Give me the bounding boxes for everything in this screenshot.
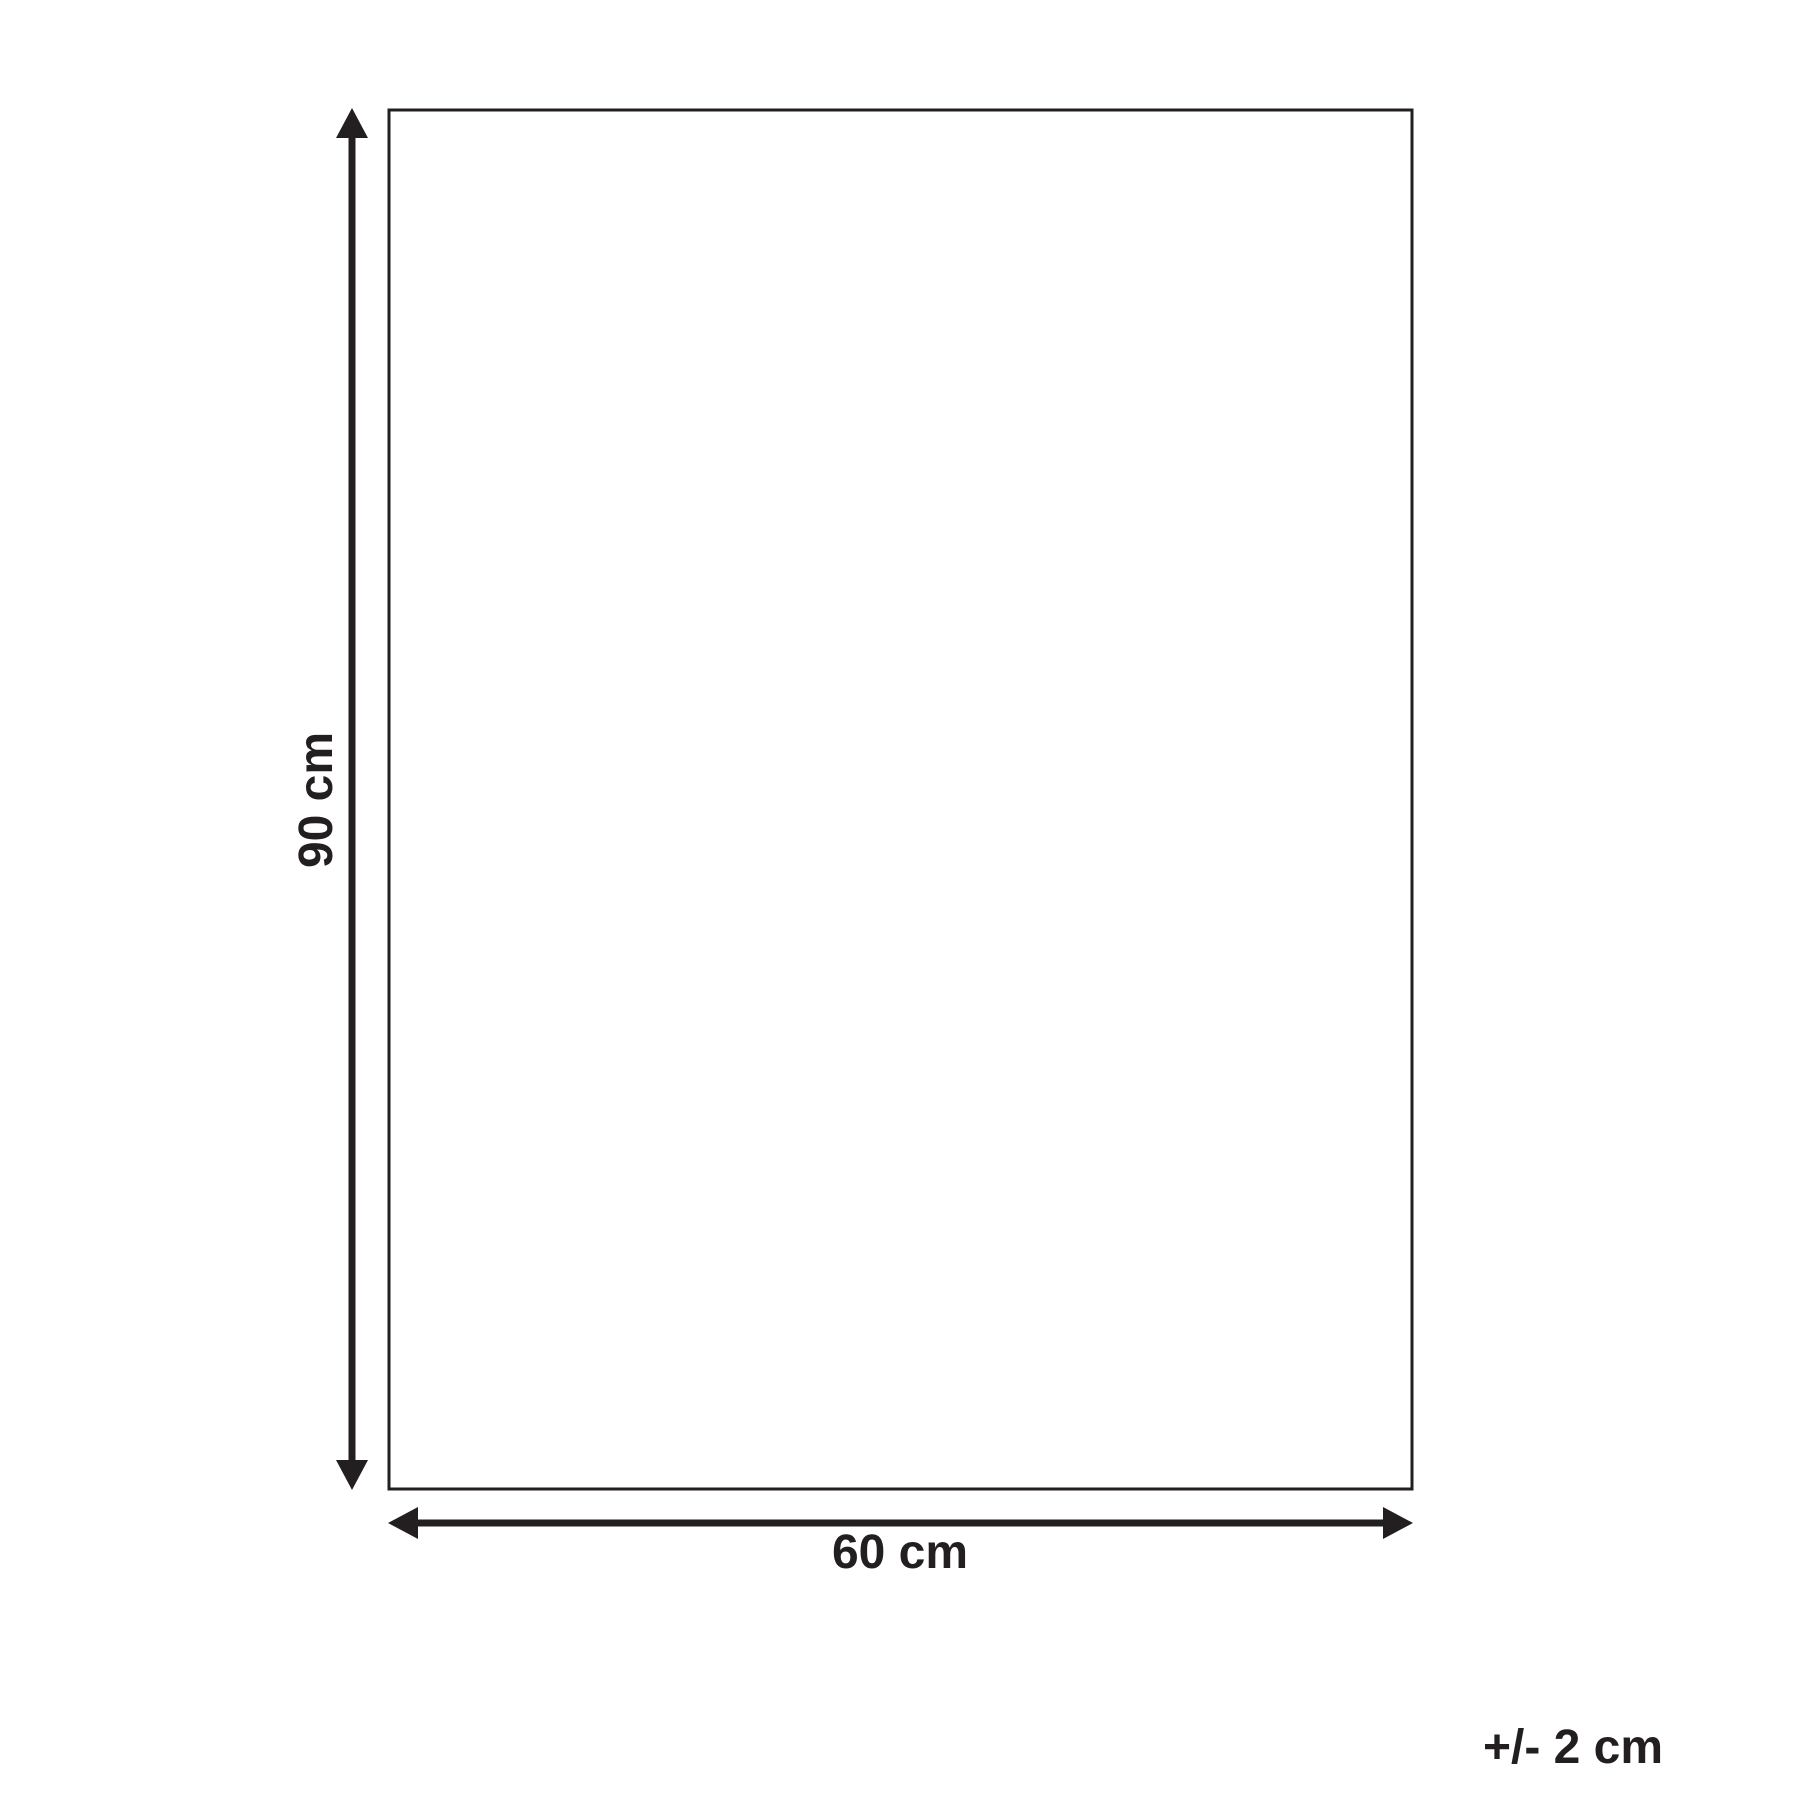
dimension-diagram: 90 cm 60 cm +/- 2 cm bbox=[0, 0, 1800, 1800]
tolerance-label: +/- 2 cm bbox=[1483, 1724, 1663, 1772]
arrow-right-icon bbox=[1383, 1507, 1413, 1539]
arrow-up-icon bbox=[336, 108, 368, 138]
arrow-left-icon bbox=[388, 1507, 418, 1539]
product-outline-rectangle bbox=[389, 110, 1412, 1489]
height-dimension-label: 90 cm bbox=[293, 732, 341, 868]
width-dimension-label: 60 cm bbox=[832, 1529, 968, 1577]
arrow-down-icon bbox=[336, 1460, 368, 1490]
